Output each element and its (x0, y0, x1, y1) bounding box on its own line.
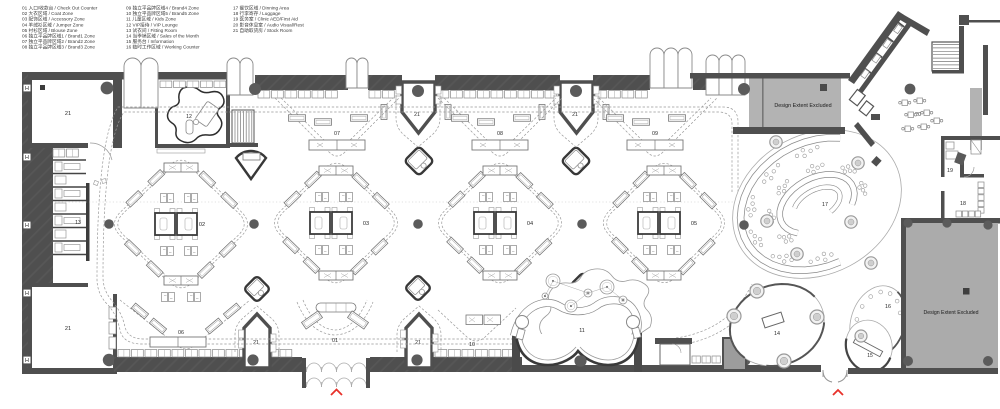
svg-text:08 独立平品牌区域3 / Brand3 Zone: 08 独立平品牌区域3 / Brand3 Zone (22, 44, 95, 51)
svg-text:21 自助取货房 / Stock Room: 21 自助取货房 / Stock Room (233, 27, 292, 34)
svg-text:19: 19 (947, 168, 953, 174)
svg-text:08: 08 (497, 131, 503, 137)
svg-text:15: 15 (867, 353, 873, 359)
svg-text:16 临时工作区域 / Working Counter: 16 临时工作区域 / Working Counter (126, 44, 200, 51)
svg-text:07: 07 (334, 131, 340, 137)
svg-text:14: 14 (774, 331, 780, 337)
svg-text:21: 21 (253, 340, 259, 346)
svg-text:03: 03 (363, 221, 369, 227)
svg-text:12: 12 (186, 114, 192, 120)
svg-text:21: 21 (415, 340, 421, 346)
svg-text:H: H (25, 223, 29, 229)
svg-text:09: 09 (652, 131, 658, 137)
svg-text:04: 04 (527, 221, 533, 227)
svg-text:06: 06 (178, 330, 184, 336)
svg-text:05: 05 (691, 221, 697, 227)
svg-text:18: 18 (960, 201, 966, 207)
svg-text:21: 21 (414, 112, 420, 118)
svg-text:17: 17 (822, 202, 828, 208)
svg-text:01: 01 (332, 338, 338, 344)
svg-text:21: 21 (572, 112, 578, 118)
svg-text:10: 10 (469, 342, 475, 348)
svg-text:21: 21 (65, 111, 71, 117)
svg-text:H: H (25, 291, 29, 297)
svg-text:H: H (25, 358, 29, 364)
svg-text:Design Extent Excluded: Design Extent Excluded (923, 310, 978, 316)
svg-text:11: 11 (579, 328, 585, 334)
svg-text:21: 21 (65, 326, 71, 332)
svg-text:13: 13 (75, 220, 81, 226)
svg-text:16: 16 (885, 304, 891, 310)
svg-text:H: H (25, 155, 29, 161)
svg-text:Design Extent Excluded: Design Extent Excluded (774, 103, 831, 109)
svg-text:02: 02 (199, 222, 205, 228)
svg-text:H: H (25, 86, 29, 92)
